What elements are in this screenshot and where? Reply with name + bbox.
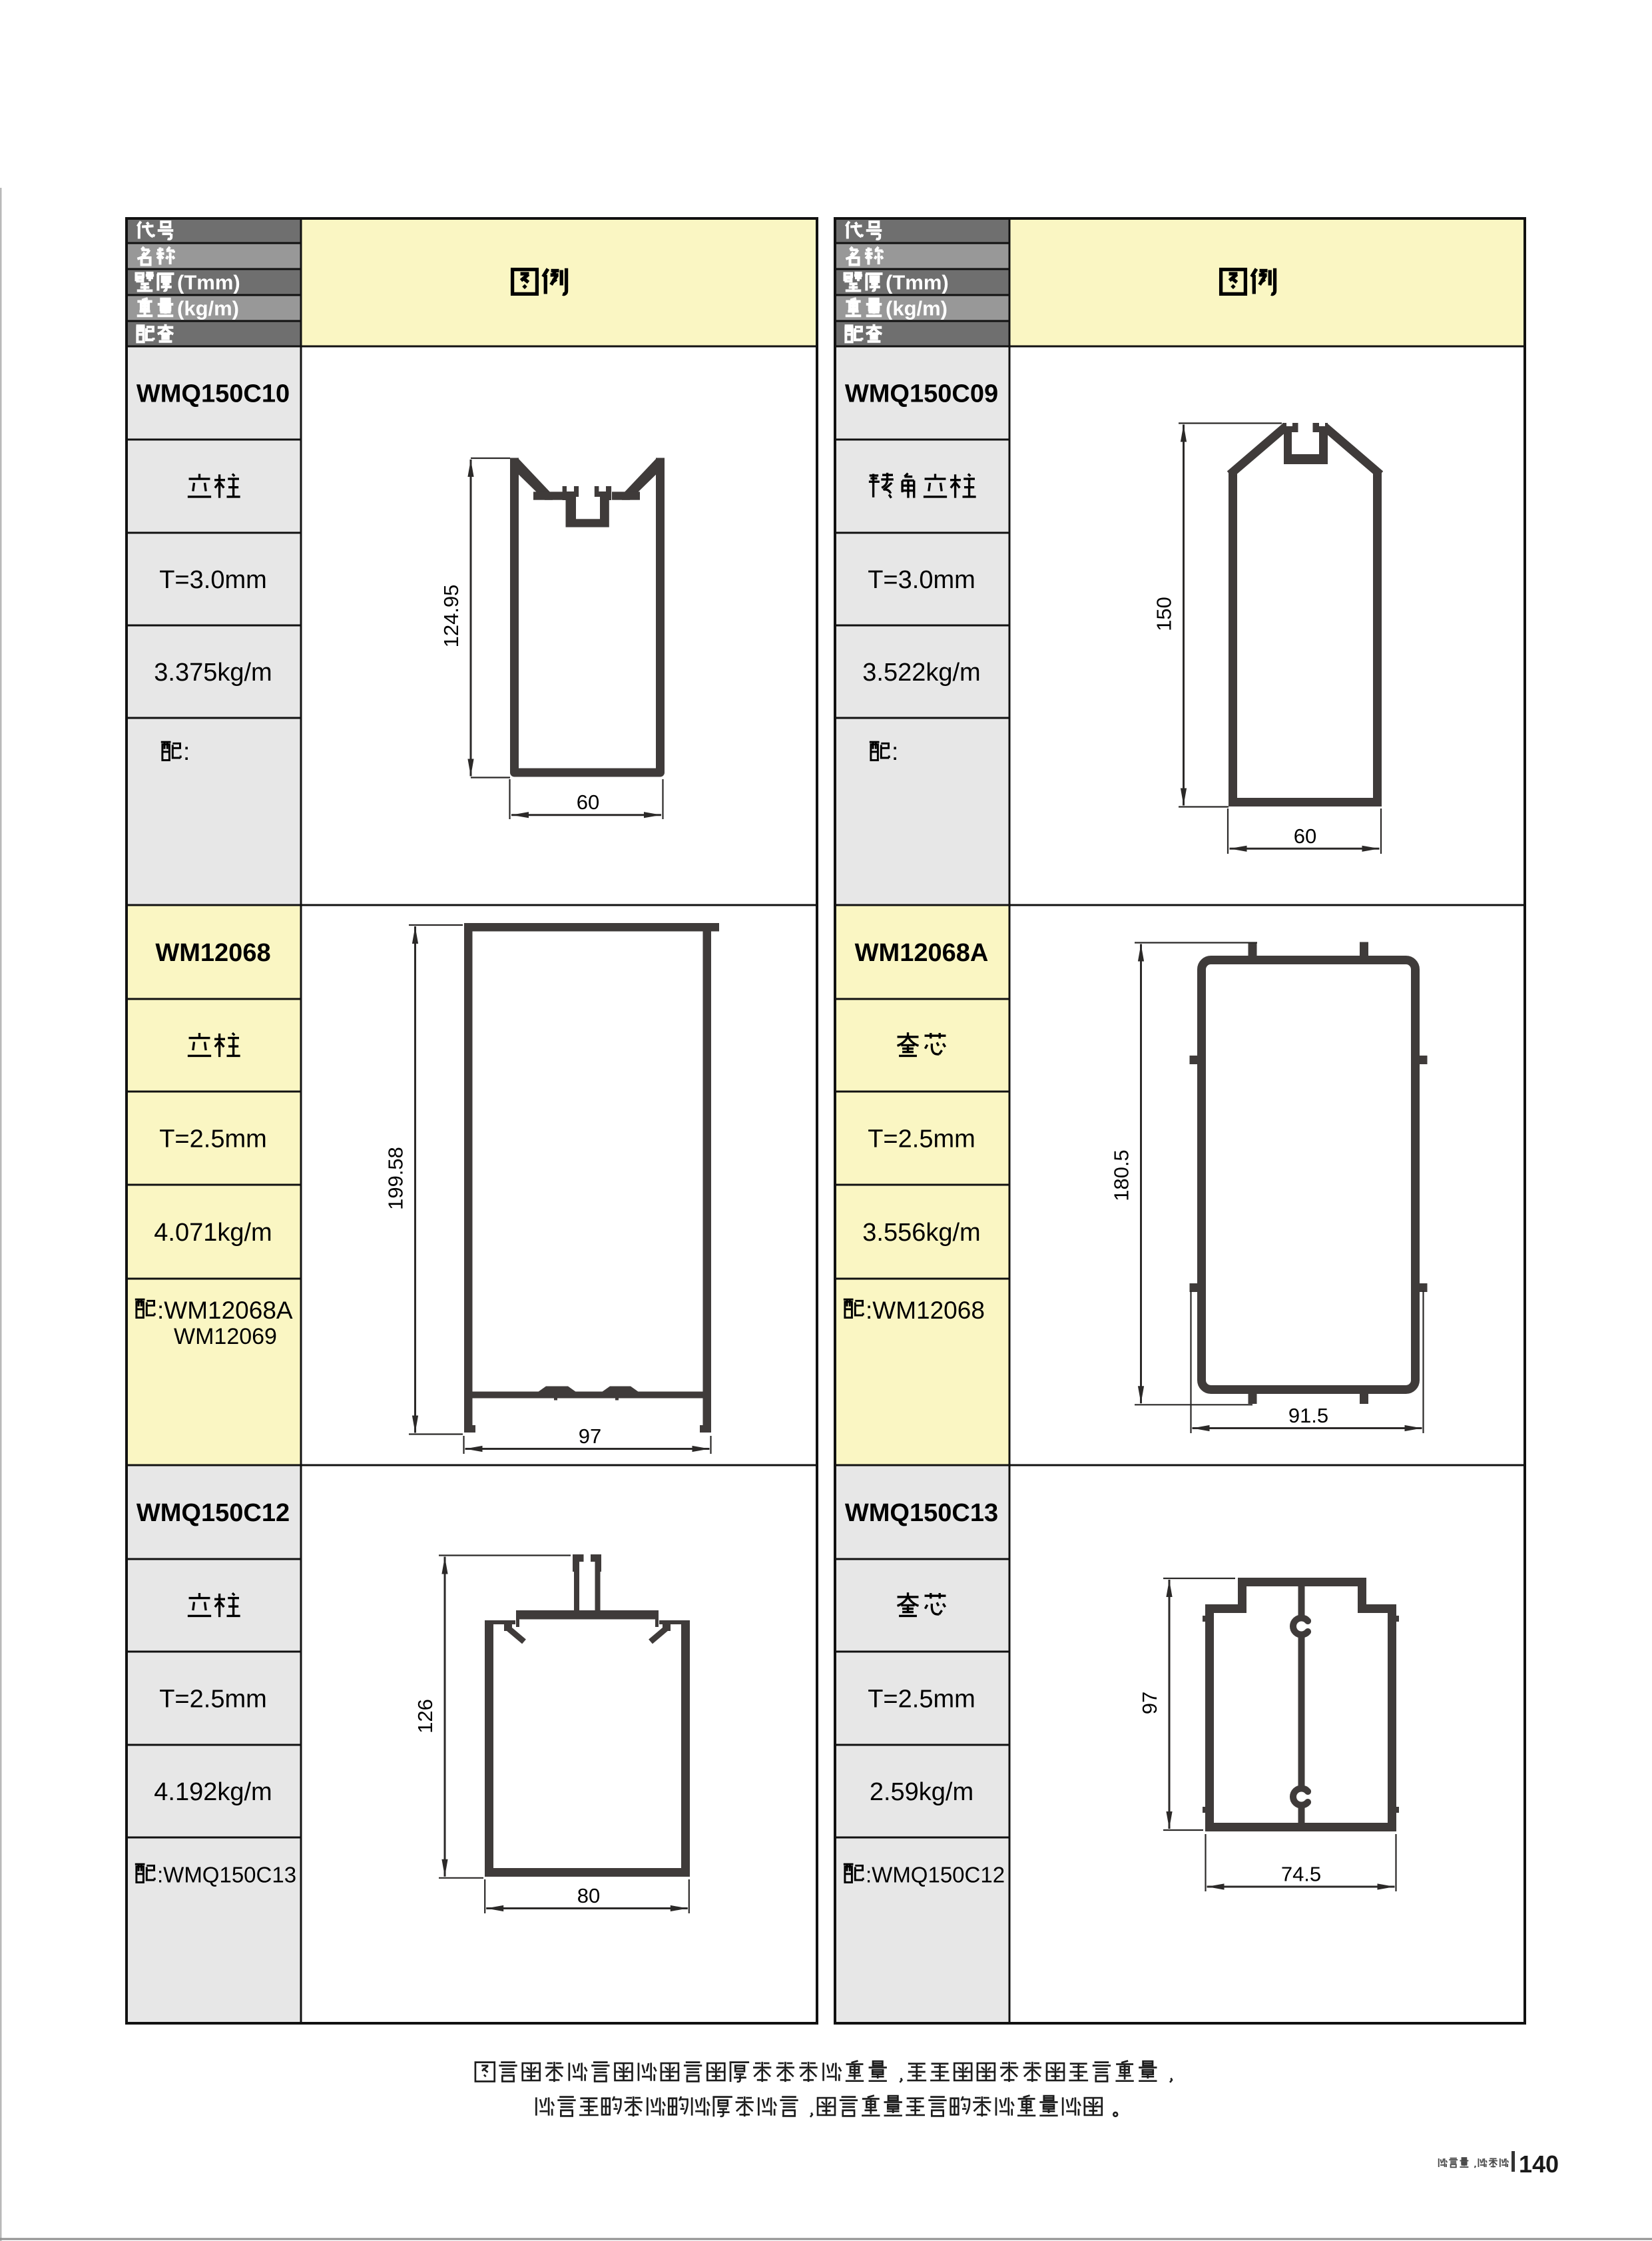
svg-text:74.5: 74.5: [1281, 1863, 1321, 1886]
svg-text::: :: [892, 738, 898, 765]
svg-text:126: 126: [413, 1699, 437, 1734]
svg-text:60: 60: [577, 791, 599, 814]
svg-text:T=2.5mm: T=2.5mm: [159, 1125, 267, 1153]
svg-text:T=2.5mm: T=2.5mm: [868, 1125, 975, 1153]
svg-text:T=2.5mm: T=2.5mm: [868, 1686, 975, 1714]
svg-text:(kg/m): (kg/m): [886, 297, 948, 320]
svg-text:(Tmm): (Tmm): [177, 271, 240, 294]
svg-text:WMQ150C12: WMQ150C12: [137, 1499, 290, 1527]
svg-text:97: 97: [1138, 1692, 1161, 1714]
svg-text:WMQ150C13: WMQ150C13: [845, 1499, 998, 1527]
svg-text:97: 97: [579, 1425, 601, 1448]
svg-text:T=3.0mm: T=3.0mm: [868, 566, 975, 594]
svg-text::: :: [183, 738, 190, 765]
svg-text:WM12068: WM12068: [155, 939, 270, 967]
svg-text:WMQ150C10: WMQ150C10: [137, 380, 290, 408]
svg-text:T=3.0mm: T=3.0mm: [159, 566, 267, 594]
svg-text::WM12068A: :WM12068A: [157, 1297, 293, 1324]
svg-text:180.5: 180.5: [1110, 1149, 1133, 1201]
svg-text:91.5: 91.5: [1288, 1404, 1328, 1427]
svg-text:3.556kg/m: 3.556kg/m: [862, 1219, 980, 1247]
svg-text:140: 140: [1519, 2150, 1559, 2178]
svg-text:3.522kg/m: 3.522kg/m: [862, 659, 980, 687]
svg-text:3.375kg/m: 3.375kg/m: [154, 659, 272, 687]
svg-text:2.59kg/m: 2.59kg/m: [870, 1778, 973, 1806]
svg-text::WMQ150C13: :WMQ150C13: [157, 1863, 296, 1887]
svg-text::WMQ150C12: :WMQ150C12: [866, 1863, 1005, 1887]
svg-text:(kg/m): (kg/m): [177, 297, 239, 320]
svg-text:124.95: 124.95: [439, 585, 463, 648]
svg-text:WM12069: WM12069: [174, 1324, 277, 1349]
svg-text:T=2.5mm: T=2.5mm: [159, 1686, 267, 1714]
svg-text:WM12068A: WM12068A: [855, 939, 989, 967]
svg-text:199.58: 199.58: [384, 1147, 408, 1210]
svg-text:80: 80: [577, 1884, 600, 1907]
svg-text:150: 150: [1153, 597, 1176, 631]
svg-text:(Tmm): (Tmm): [886, 271, 949, 294]
svg-text:4.071kg/m: 4.071kg/m: [154, 1219, 272, 1247]
svg-text:4.192kg/m: 4.192kg/m: [154, 1778, 272, 1806]
svg-text::WM12068: :WM12068: [866, 1297, 985, 1324]
svg-text:60: 60: [1294, 824, 1316, 848]
svg-text:WMQ150C09: WMQ150C09: [845, 380, 998, 408]
